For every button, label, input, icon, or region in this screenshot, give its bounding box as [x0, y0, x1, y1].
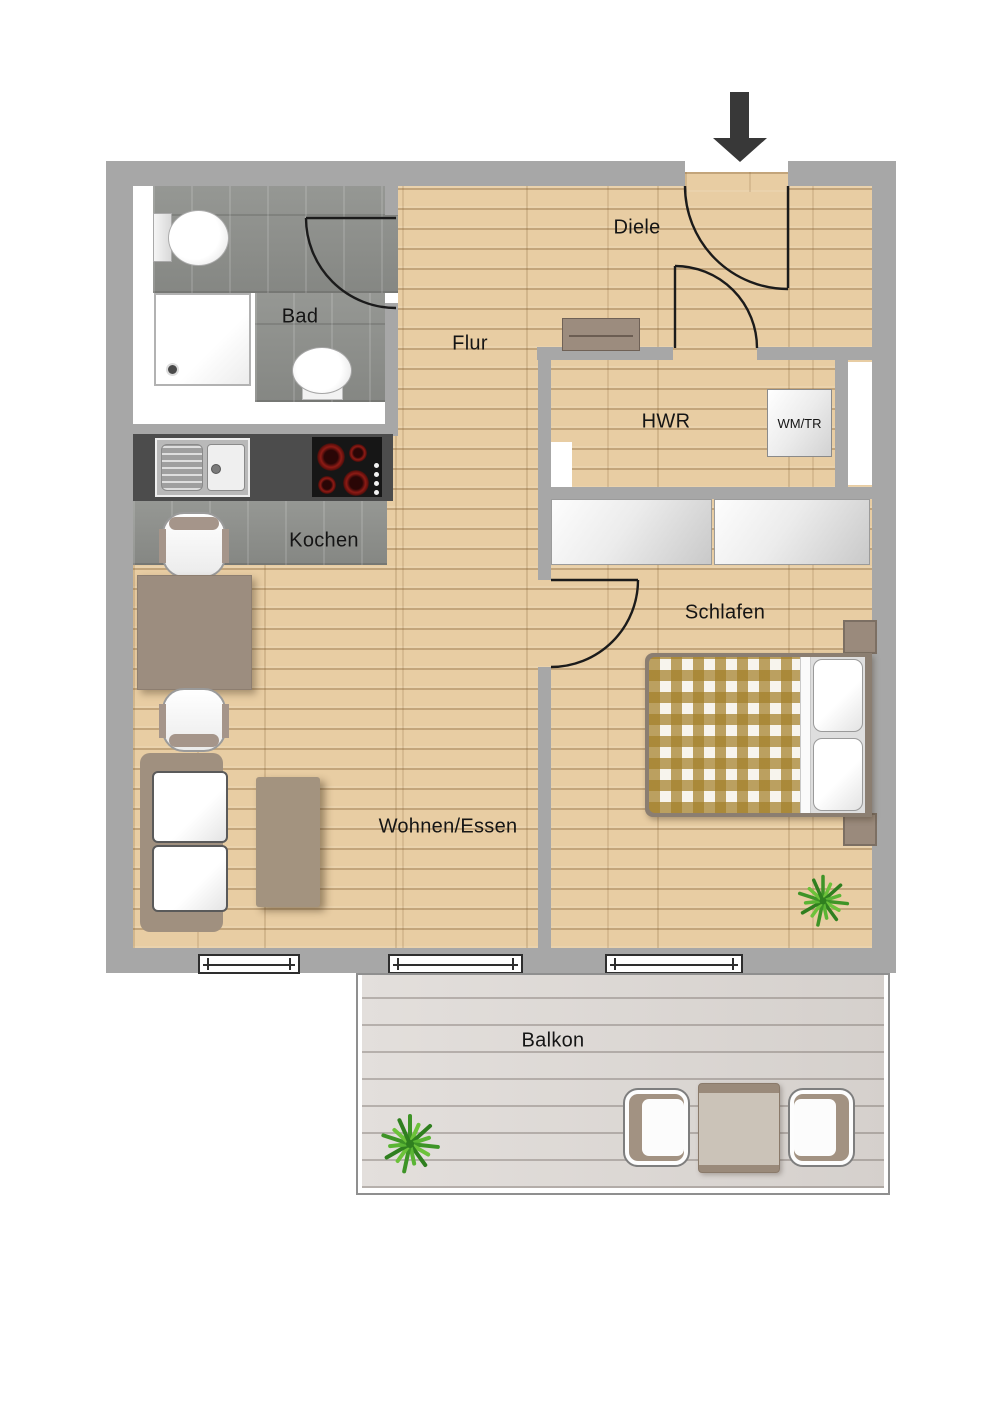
entrance-arrow-head-icon — [713, 138, 767, 162]
bed-pillow — [813, 738, 863, 811]
room-label-kochen: Kochen — [289, 530, 359, 553]
balcony-chair-cushion — [642, 1099, 684, 1156]
cooktop-knob — [374, 490, 379, 495]
entrance-threshold — [685, 172, 788, 192]
room-label-bad: Bad — [282, 306, 319, 329]
dining-chair-bottom — [162, 688, 226, 752]
bed-pillow — [813, 659, 863, 732]
wall-bath-right-upper — [385, 186, 398, 215]
washer-dryer: WM/TR — [767, 389, 832, 457]
window-tick — [614, 958, 616, 970]
hwr-right-niche — [848, 362, 872, 485]
hwr-left-niche — [551, 442, 572, 487]
wall-left — [106, 161, 133, 973]
wall-top-left — [106, 161, 685, 186]
dining-table — [137, 575, 252, 690]
wardrobe-left — [551, 499, 712, 565]
window — [198, 954, 300, 974]
floorplan-page: { "floorplan": { "labels": { "bad": "Bad… — [0, 0, 1000, 1415]
window — [388, 954, 523, 974]
wall-bedroom-top — [538, 487, 872, 499]
balcony-chair-left — [623, 1088, 690, 1167]
kitchen-sink-drainboard — [161, 444, 203, 491]
room-label-diele: Diele — [613, 217, 660, 240]
bed-blanket-fold — [800, 657, 811, 813]
room-label-wohnen-essen: Wohnen/Essen — [379, 816, 518, 839]
balcony-chair-right — [788, 1088, 855, 1167]
chair-armrest — [222, 704, 229, 738]
sofa-cushion — [152, 845, 228, 912]
sideboard-handle — [569, 335, 633, 337]
wall-bath-right-lower — [385, 303, 398, 436]
wall-hwr-right-seg — [835, 360, 848, 487]
sideboard — [562, 318, 640, 351]
shower-tray — [154, 293, 251, 386]
window-tick — [289, 958, 291, 970]
bed-blanket — [649, 657, 800, 813]
bath-sink — [292, 347, 352, 394]
burner-large-tl — [317, 443, 345, 471]
kitchen-sink — [155, 438, 250, 497]
room-label-schlafen: Schlafen — [685, 602, 765, 625]
room-label-balkon: Balkon — [522, 1030, 585, 1053]
burner-small-tr — [349, 444, 367, 462]
room-label-hwr: HWR — [642, 411, 691, 434]
window — [605, 954, 743, 974]
window-tick — [732, 958, 734, 970]
burner-large-br — [343, 470, 369, 496]
washer-dryer-label: WM/TR — [777, 416, 821, 431]
plant-icon — [378, 1112, 442, 1176]
wardrobe-right — [714, 499, 870, 565]
cooktop-knob — [374, 472, 379, 477]
balcony-table — [698, 1083, 780, 1173]
chair-armrest — [222, 529, 229, 563]
balcony-chair-cushion — [794, 1099, 836, 1156]
chair-backrest — [169, 517, 219, 530]
kitchen-faucet — [211, 464, 221, 474]
entrance-arrow-icon — [730, 92, 749, 138]
nightstand-top — [843, 620, 877, 654]
wall-hwr-left — [538, 347, 551, 580]
plant-icon — [795, 873, 851, 929]
window-tick — [207, 958, 209, 970]
dining-chair-top — [162, 512, 226, 578]
wall-right — [872, 161, 896, 973]
chair-armrest — [159, 529, 166, 563]
toilet-bowl — [168, 210, 229, 266]
cooktop-knob — [374, 463, 379, 468]
double-bed — [645, 653, 872, 817]
sofa-cushion — [152, 771, 228, 843]
shower-drain — [166, 363, 179, 376]
chair-backrest — [169, 734, 219, 747]
kitchen-sink-basin — [207, 444, 245, 491]
nightstand-bottom — [843, 813, 877, 846]
coffee-table — [256, 777, 320, 907]
burner-small-bl — [318, 476, 336, 494]
room-label-flur: Flur — [452, 333, 488, 356]
window-tick — [397, 958, 399, 970]
wall-living-bedroom — [538, 667, 551, 948]
wall-diele-hwr-right — [757, 347, 872, 360]
cooktop-knob — [374, 481, 379, 486]
chair-armrest — [159, 704, 166, 738]
floorplan: WM/TR — [0, 0, 1000, 1415]
bed-pillow-zone — [811, 657, 865, 813]
window-tick — [512, 958, 514, 970]
cooktop — [312, 437, 382, 497]
